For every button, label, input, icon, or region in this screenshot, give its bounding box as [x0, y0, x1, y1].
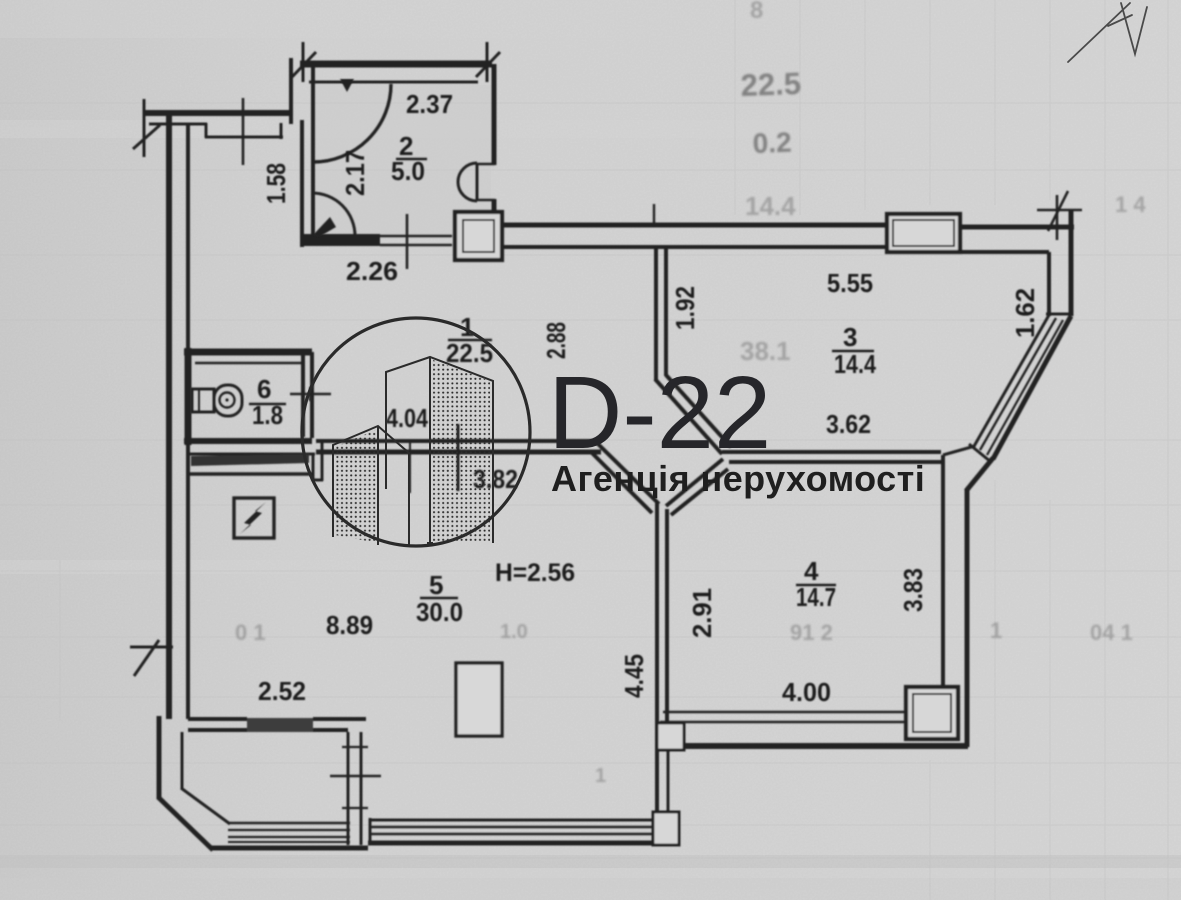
svg-text:3: 3 [843, 322, 857, 352]
svg-text:5: 5 [429, 570, 443, 600]
svg-text:2.26: 2.26 [346, 256, 398, 286]
svg-text:30.0: 30.0 [416, 597, 463, 627]
svg-text:Агенція нерухомості: Агенція нерухомості [551, 458, 925, 499]
svg-text:2.37: 2.37 [406, 89, 453, 119]
svg-text:5.0: 5.0 [391, 156, 425, 186]
svg-text:14.7: 14.7 [796, 582, 836, 612]
svg-text:5.55: 5.55 [827, 268, 873, 298]
svg-text:4.00: 4.00 [782, 677, 831, 707]
svg-text:14.4: 14.4 [834, 349, 876, 379]
svg-text:2.17: 2.17 [340, 150, 370, 196]
svg-text:D-22: D-22 [548, 355, 771, 470]
svg-text:1.58: 1.58 [261, 163, 291, 204]
svg-text:1.8: 1.8 [252, 400, 283, 430]
svg-text:3.62: 3.62 [826, 409, 871, 439]
svg-text:4.04: 4.04 [386, 403, 428, 433]
svg-text:2.91: 2.91 [687, 588, 717, 638]
svg-text:1.92: 1.92 [670, 286, 700, 330]
svg-text:8.89: 8.89 [326, 610, 373, 640]
svg-text:3.83: 3.83 [898, 568, 928, 612]
svg-text:1.62: 1.62 [1010, 288, 1040, 338]
svg-text:2.52: 2.52 [258, 676, 306, 706]
svg-text:4.45: 4.45 [619, 654, 649, 698]
svg-text:H=2.56: H=2.56 [495, 559, 575, 587]
svg-text:2.88: 2.88 [541, 322, 571, 359]
